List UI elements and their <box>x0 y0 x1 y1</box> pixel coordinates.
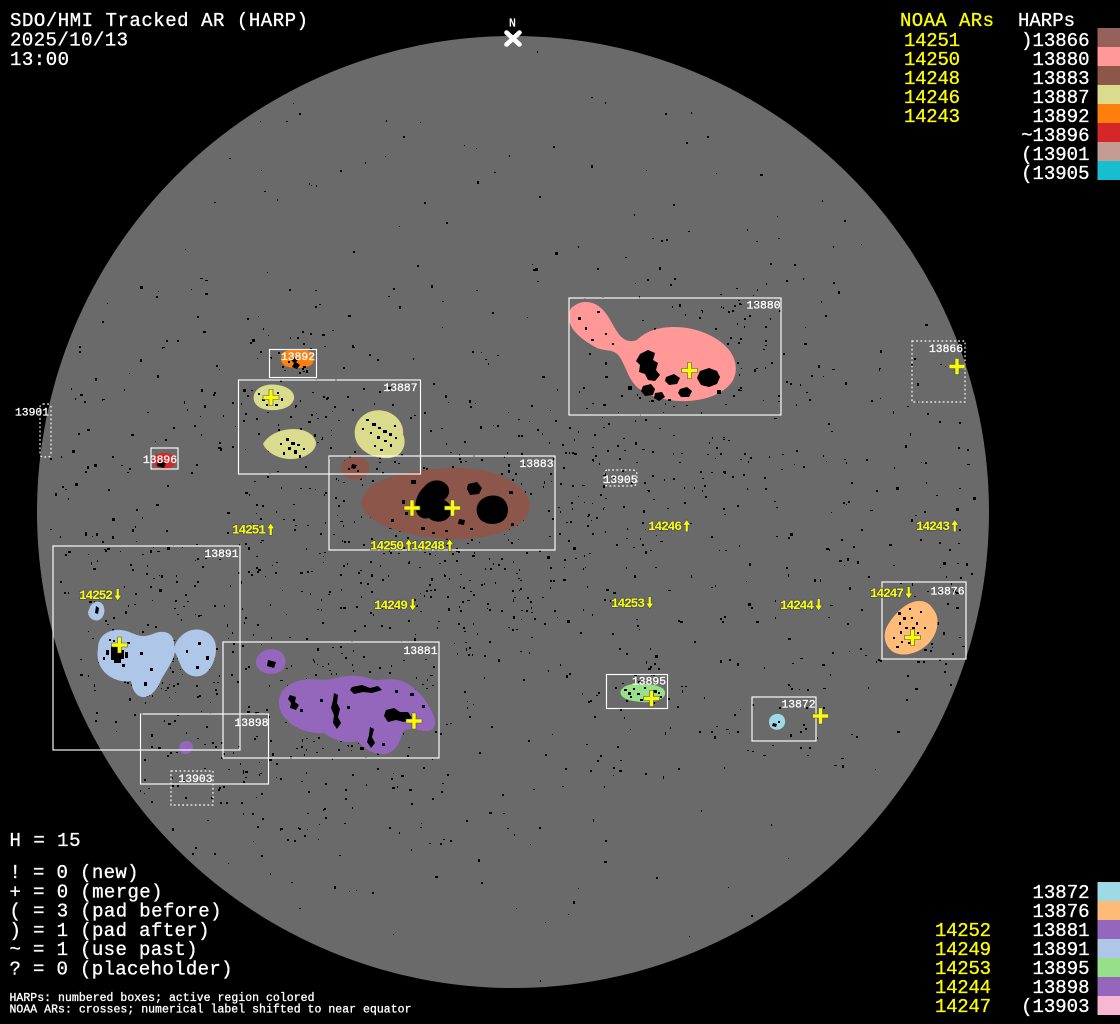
svg-text:(13905: (13905 <box>1021 163 1089 185</box>
svg-text:14247: 14247 <box>870 586 904 601</box>
svg-text:13866: 13866 <box>929 344 963 356</box>
svg-text:(13903: (13903 <box>1021 996 1089 1018</box>
svg-text:H = 15: H = 15 <box>10 830 81 852</box>
svg-text:13880: 13880 <box>747 301 781 313</box>
svg-text:13887: 13887 <box>384 383 418 395</box>
svg-text:13905: 13905 <box>604 475 638 487</box>
svg-text:HARPs: HARPs <box>1018 10 1075 32</box>
svg-text:13895: 13895 <box>632 677 666 689</box>
svg-text:? = 0 (placeholder): ? = 0 (placeholder) <box>10 959 233 981</box>
svg-text:14246: 14246 <box>648 519 682 534</box>
svg-text:14253: 14253 <box>611 596 645 611</box>
svg-text:13:00: 13:00 <box>10 49 69 71</box>
svg-text:14244: 14244 <box>780 598 814 613</box>
svg-text:14249: 14249 <box>374 598 408 613</box>
svg-text:NOAA ARs: NOAA ARs <box>900 10 994 32</box>
svg-text:13872: 13872 <box>782 700 816 712</box>
svg-text:14248: 14248 <box>411 539 445 554</box>
svg-text:13903: 13903 <box>179 774 213 786</box>
svg-text:13881: 13881 <box>404 646 438 658</box>
svg-text:13892: 13892 <box>281 352 315 364</box>
svg-text:13901: 13901 <box>15 408 49 420</box>
svg-text:13898: 13898 <box>235 718 269 730</box>
svg-text:14250: 14250 <box>370 539 404 554</box>
svg-text:NOAA ARs: crosses; numerical l: NOAA ARs: crosses; numerical label shift… <box>10 1004 412 1017</box>
svg-text:13876: 13876 <box>931 587 965 599</box>
svg-text:14243: 14243 <box>916 519 950 534</box>
svg-text:14247: 14247 <box>935 996 991 1018</box>
svg-text:13883: 13883 <box>520 459 554 471</box>
svg-text:13891: 13891 <box>205 549 239 561</box>
svg-text:13896: 13896 <box>143 455 177 467</box>
svg-text:14251: 14251 <box>232 523 266 538</box>
svg-text:N: N <box>509 18 516 31</box>
svg-text:14252: 14252 <box>79 588 113 603</box>
svg-text:14243: 14243 <box>904 106 960 128</box>
